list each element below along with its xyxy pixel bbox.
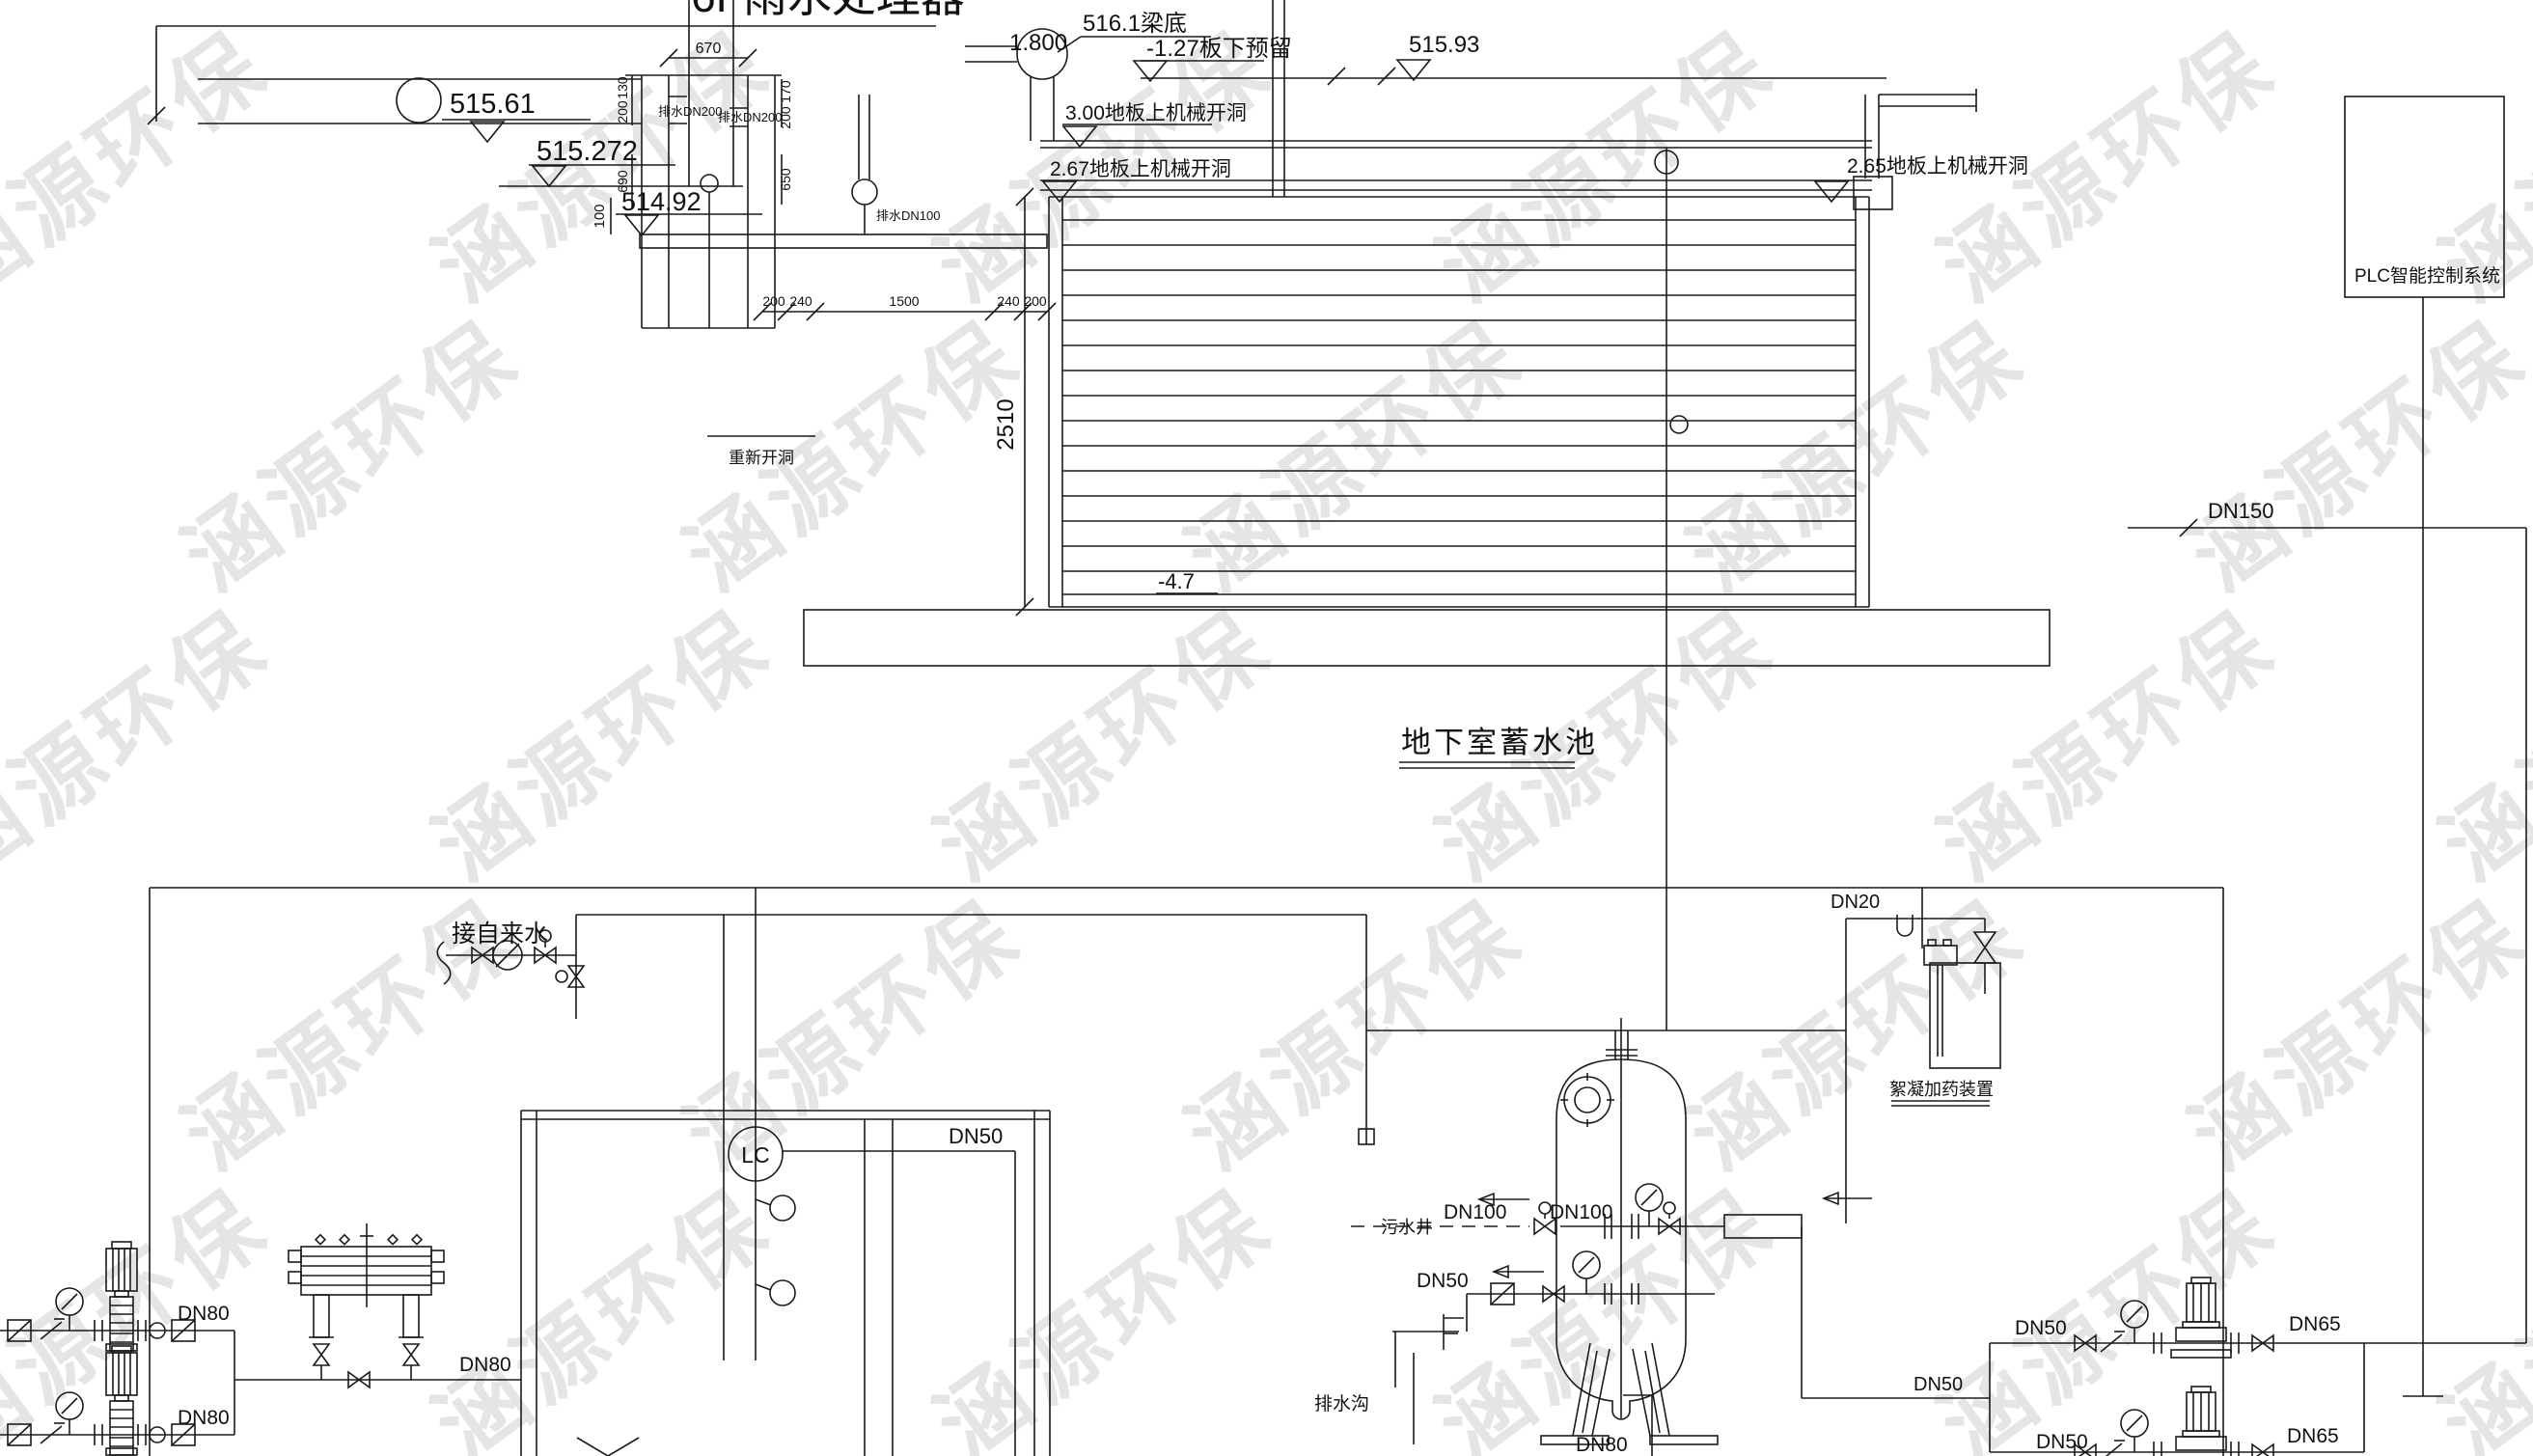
label-dn100-b: DN100 bbox=[1550, 1201, 1612, 1223]
dim-b3: 240 bbox=[997, 293, 1020, 309]
dim-2510: 2510 bbox=[993, 398, 1019, 450]
label-dn200-right: 排水DN200 bbox=[718, 110, 782, 124]
label-dn150: DN150 bbox=[2208, 499, 2273, 523]
main-header-pipe bbox=[150, 148, 2223, 1456]
level-controller-label: LC bbox=[741, 1142, 769, 1168]
tank-title: 地下室蓄水池 bbox=[1401, 726, 1598, 759]
label-dn100-a: DN100 bbox=[1444, 1201, 1506, 1223]
right-pump-skid bbox=[1990, 1277, 2526, 1456]
label-dn50-level: DN50 bbox=[949, 1124, 1003, 1148]
dim-200-left: 200 bbox=[615, 100, 630, 124]
label-dn80-drain: DN80 bbox=[1576, 1434, 1628, 1456]
plc-box bbox=[2345, 96, 2504, 1396]
dim-100: 100 bbox=[592, 204, 608, 228]
tap-water-label: 接自来水 bbox=[452, 920, 548, 948]
dim-170: 170 bbox=[778, 80, 793, 103]
drain-ditch-label: 排水沟 bbox=[1314, 1393, 1369, 1415]
label-dn50-pump2: DN50 bbox=[2036, 1431, 2088, 1453]
elev-1800: 1.800 bbox=[1009, 30, 1067, 56]
label-dn80-header: DN80 bbox=[459, 1354, 511, 1376]
dim-b1: 240 bbox=[789, 293, 812, 309]
label-dn50-feed: DN50 bbox=[1914, 1374, 1963, 1395]
note-open-265: 2.65地板上机械开洞 bbox=[1847, 155, 2028, 178]
dosing-unit bbox=[1846, 888, 2000, 1223]
label-dn20: DN20 bbox=[1831, 892, 1880, 913]
dim-b0: 200 bbox=[762, 293, 785, 309]
elev-515-61: 515.61 bbox=[450, 89, 536, 120]
label-dn80-pump1: DN80 bbox=[178, 1303, 230, 1325]
label-dn80-pump2: DN80 bbox=[178, 1407, 230, 1429]
building-title: 6F雨水处理器 bbox=[691, 0, 965, 21]
label-dn65-pump1: DN65 bbox=[2289, 1313, 2341, 1335]
elev-neg-4-7: -4.7 bbox=[1158, 569, 1195, 593]
dim-670: 670 bbox=[696, 41, 722, 57]
note-reopen: 重新开洞 bbox=[729, 449, 794, 467]
sewage-well-label: 污水井 bbox=[1381, 1218, 1433, 1237]
dn150-pipe bbox=[2128, 519, 2526, 1343]
label-dn65-pump2: DN65 bbox=[2287, 1425, 2339, 1447]
dosing-label: 絮凝加药装置 bbox=[1889, 1080, 1994, 1099]
piping-diagram: 6F雨水处理器 515.61 515.272 514.92 100 670 13… bbox=[0, 0, 2533, 1456]
elev-beam: 516.1梁底 bbox=[1083, 11, 1187, 37]
note-open-267: 2.67地板上机械开洞 bbox=[1050, 158, 1231, 180]
suction-tank bbox=[521, 1111, 1050, 1456]
elev-514-92: 514.92 bbox=[621, 187, 702, 216]
dim-650: 650 bbox=[778, 168, 793, 191]
note-open-300: 3.00地板上机械开洞 bbox=[1065, 102, 1247, 124]
cad-drawing-page: 涵源环保涵源环保涵源环保涵源环保涵源环保涵源环保涵源环保涵源环保涵源环保涵源环保… bbox=[0, 0, 2533, 1456]
elev-515-93: 515.93 bbox=[1409, 32, 1479, 58]
label-dn50-pump1: DN50 bbox=[2015, 1317, 2067, 1339]
label-dn200-left: 排水DN200 bbox=[658, 104, 722, 119]
elev-515-272: 515.272 bbox=[537, 136, 638, 167]
dim-130: 130 bbox=[615, 76, 630, 99]
dim-690: 690 bbox=[615, 170, 630, 193]
dim-b4: 200 bbox=[1024, 293, 1047, 309]
left-pump-skid bbox=[0, 1223, 521, 1455]
label-dn100-pit: 排水DN100 bbox=[876, 208, 940, 223]
dim-b2: 1500 bbox=[889, 293, 919, 309]
plc-label: PLC智能控制系统 bbox=[2354, 265, 2500, 287]
storage-tank bbox=[804, 151, 2050, 768]
note-slab-reserve: -1.27板下预留 bbox=[1146, 36, 1292, 62]
label-dn50-backwash: DN50 bbox=[1417, 1270, 1469, 1292]
